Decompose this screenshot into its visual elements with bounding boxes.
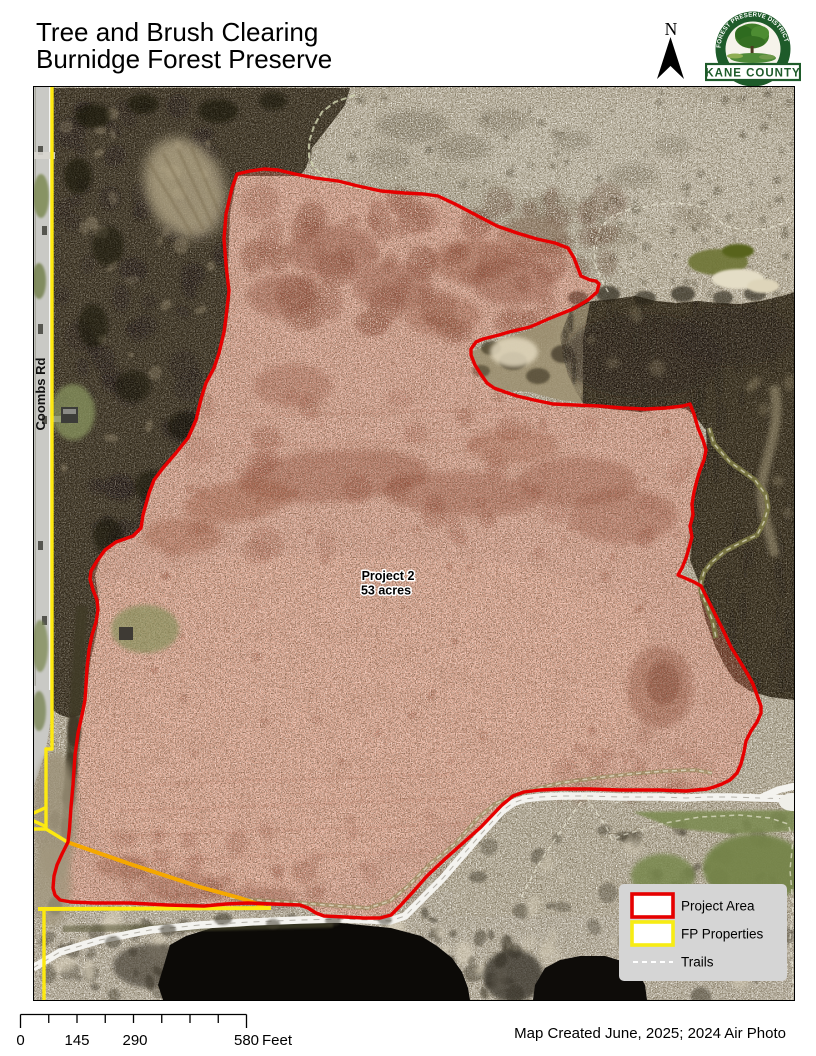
svg-text:KANE COUNTY: KANE COUNTY (705, 68, 800, 80)
svg-text:145: 145 (64, 1032, 89, 1049)
svg-text:Project 2: Project 2 (362, 569, 415, 583)
svg-text:Coombs Rd: Coombs Rd (33, 357, 48, 430)
svg-text:N: N (665, 19, 678, 39)
svg-text:Map Created June, 2025; 2024 A: Map Created June, 2025; 2024 Air Photo (514, 1025, 786, 1042)
svg-text:Feet: Feet (262, 1032, 293, 1049)
svg-text:Trails: Trails (681, 955, 714, 970)
svg-text:Project Area: Project Area (681, 899, 755, 914)
svg-text:FP Properties: FP Properties (681, 927, 764, 942)
svg-text:0: 0 (16, 1032, 24, 1049)
svg-text:290: 290 (122, 1032, 147, 1049)
svg-text:580: 580 (234, 1032, 259, 1049)
svg-text:53 acres: 53 acres (361, 584, 411, 598)
